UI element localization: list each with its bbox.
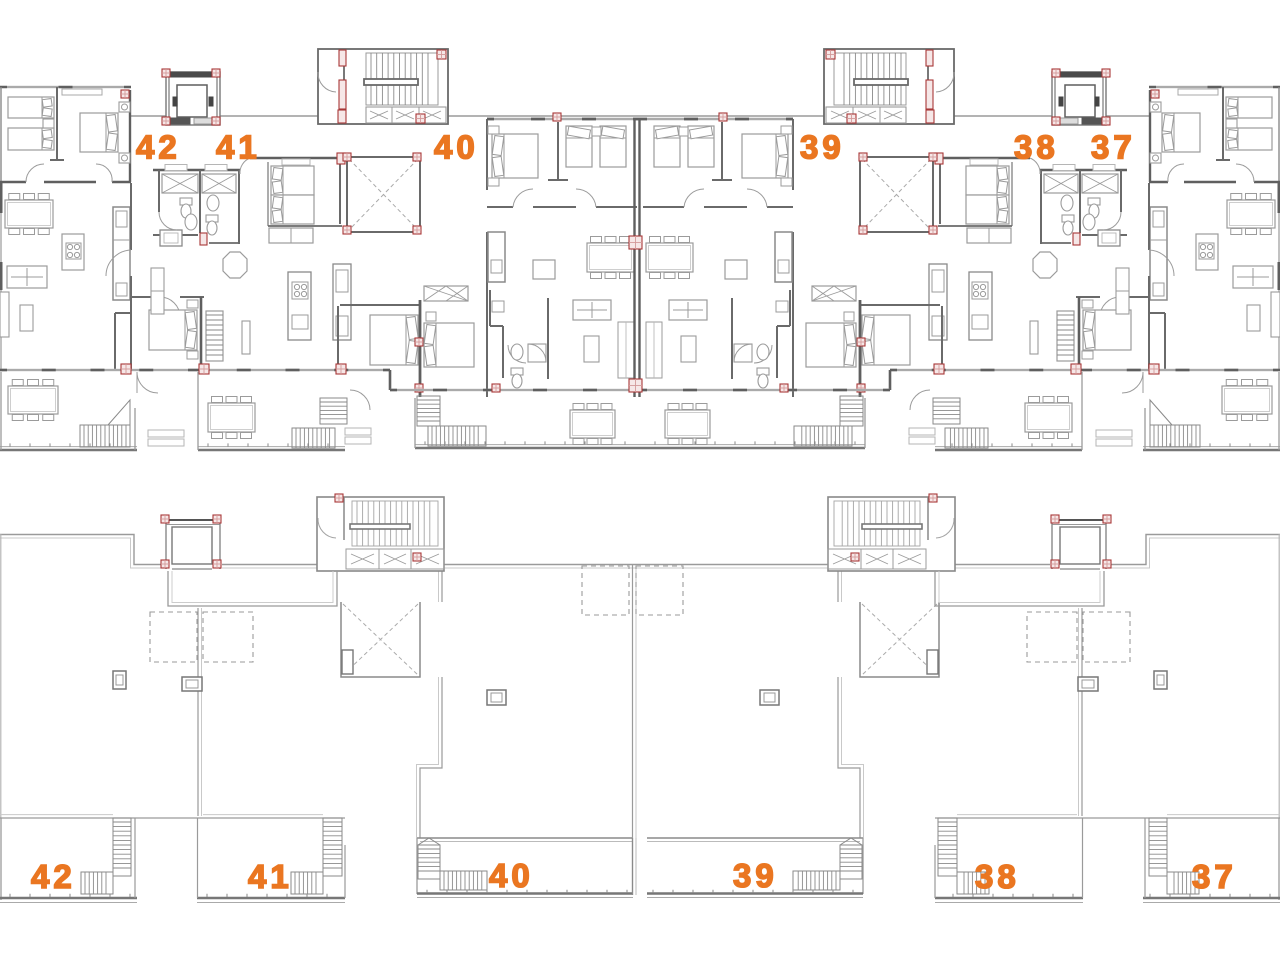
- svg-text:38: 38: [1014, 129, 1059, 166]
- svg-text:40: 40: [434, 129, 479, 166]
- svg-text:37: 37: [1192, 858, 1237, 895]
- svg-text:41: 41: [248, 858, 293, 895]
- svg-text:39: 39: [800, 129, 845, 166]
- svg-text:38: 38: [975, 858, 1020, 895]
- svg-text:40: 40: [489, 857, 534, 894]
- svg-text:42: 42: [136, 129, 181, 166]
- svg-text:39: 39: [733, 857, 778, 894]
- svg-text:41: 41: [216, 129, 261, 166]
- svg-text:37: 37: [1091, 129, 1136, 166]
- svg-text:42: 42: [31, 858, 76, 895]
